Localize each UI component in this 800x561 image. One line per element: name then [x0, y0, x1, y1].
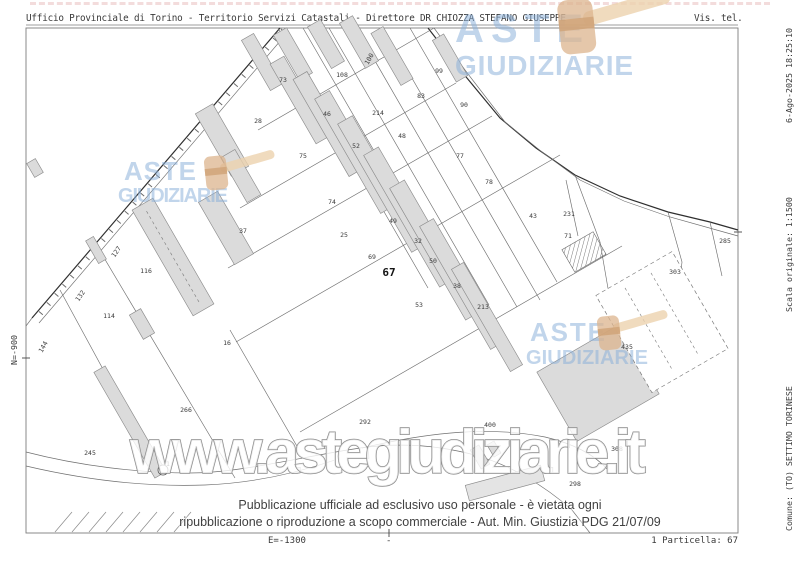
- parcel-number: 114: [103, 312, 115, 320]
- logo-word-aste: ASTE: [124, 156, 196, 186]
- parcel-number: 69: [368, 253, 376, 261]
- north-coordinate-label: N=-900: [9, 335, 19, 365]
- parcel-number: 49: [389, 217, 397, 225]
- building: [132, 198, 214, 316]
- parcel-number: 50: [429, 257, 437, 265]
- parcel-number: 116: [140, 267, 152, 275]
- cadastral-map-page: { "header": { "left": "Ufficio Provincia…: [0, 0, 800, 561]
- parcel-number: 16: [223, 339, 231, 347]
- building: [451, 262, 522, 371]
- parcel-number: 71: [564, 232, 572, 240]
- parcel-number: 132: [74, 289, 87, 303]
- parcel-number: 52: [352, 142, 360, 150]
- east-coordinate-label: E=-1300: [268, 536, 306, 546]
- logo-word-aste: ASTE: [530, 317, 605, 347]
- parcel-number: 28: [254, 117, 262, 125]
- parcel-number: 285: [719, 237, 731, 245]
- parcel-number: 214: [372, 109, 384, 117]
- parcel-number: 99: [435, 67, 443, 75]
- right-margin-metadata: Comune: (TO) SETTIMO TORINESE Scala orig…: [745, 28, 800, 531]
- building: [371, 27, 413, 86]
- scale-label: Scala originale: 1:1500: [783, 197, 796, 312]
- parcel-number: 78: [485, 178, 493, 186]
- parcel-number: 77: [456, 152, 464, 160]
- metadata-line-1: Comune: (TO) SETTIMO TORINESE Scala orig…: [783, 28, 796, 531]
- building: [27, 159, 44, 178]
- disclaimer-line-1: Pubblicazione ufficiale ad esclusivo uso…: [40, 498, 800, 512]
- parcel-number: 74: [328, 198, 336, 206]
- parcel-number: 73: [279, 76, 287, 84]
- parcel-number: 213: [477, 303, 489, 311]
- map-canvas: 7310810099839028462144852757778744349253…: [0, 0, 800, 561]
- parcel-number: 43: [529, 212, 537, 220]
- parcel-number: 53: [415, 301, 423, 309]
- parcel-number: 90: [460, 101, 468, 109]
- url-watermark: www.astegiudiziarie.it: [129, 418, 646, 487]
- parcel-number: 127: [110, 245, 123, 259]
- logo-word-giudiziarie: GIUDIZIARIE: [455, 50, 633, 81]
- parcel-number: 144: [37, 340, 50, 354]
- parcel-number: 25: [340, 231, 348, 239]
- parcel-number: 38: [453, 282, 461, 290]
- parcel-number: 108: [336, 71, 348, 79]
- parcel-number: 303: [669, 268, 681, 276]
- logo-watermark-top-right: ASTE GIUDIZIARIE: [455, 0, 676, 81]
- highlighted-parcel-number: 67: [382, 266, 395, 279]
- parcel-number: 83: [417, 92, 425, 100]
- parcel-number: 75: [299, 152, 307, 160]
- parcel-number: 46: [323, 110, 331, 118]
- logo-word-giudiziarie: GIUDIZIARIE: [526, 347, 648, 369]
- parcel-number: 231: [563, 210, 575, 218]
- parcel-number: 48: [398, 132, 406, 140]
- parcel-reference-label: 1 Particella: 67: [650, 536, 738, 546]
- parcel-number: 245: [84, 449, 96, 457]
- parcel-number: 37: [239, 227, 247, 235]
- parcel-number: 266: [180, 406, 192, 414]
- parcel-number: 32: [414, 237, 422, 245]
- footer-center-tick: -: [386, 536, 391, 546]
- disclaimer-line-2: ripubblicazione o riproduzione a scopo c…: [40, 515, 800, 529]
- building: [308, 19, 345, 68]
- timestamp-label: 6-Ago-2025 18:25:10: [783, 28, 796, 123]
- building: [129, 309, 154, 340]
